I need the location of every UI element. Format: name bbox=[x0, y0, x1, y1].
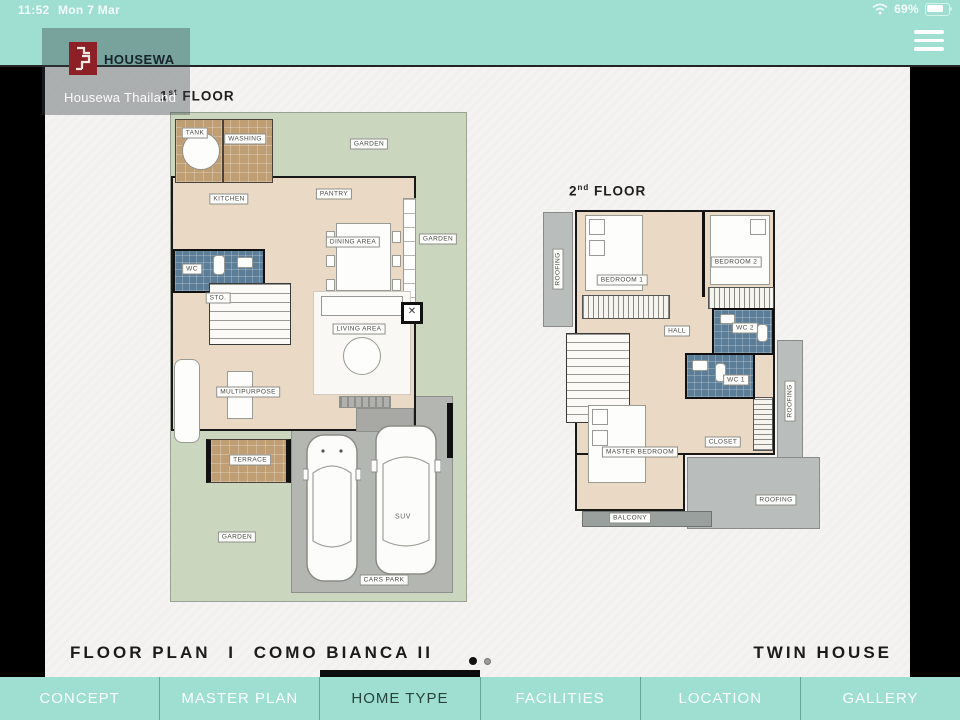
sink-icon bbox=[237, 257, 253, 268]
bottom-nav: CONCEPT MASTER PLAN HOME TYPE FACILITIES… bbox=[0, 677, 960, 720]
brand-name: HOUSEWA bbox=[104, 52, 175, 67]
nav-item-gallery[interactable]: GALLERY bbox=[800, 677, 960, 720]
caption-plan-name: COMO BIANCA II bbox=[254, 643, 433, 662]
master-bed-icon bbox=[588, 405, 646, 483]
room-label-kitchen: KITCHEN bbox=[209, 194, 248, 205]
caption-house-type: TWIN HOUSE bbox=[753, 643, 892, 663]
wifi-icon bbox=[872, 3, 888, 15]
second-floor-plan: ROOFING BEDROOM 1 BEDROOM 2 HALL WC 2 WC… bbox=[540, 205, 820, 560]
room-label-hall: HALL bbox=[664, 326, 690, 337]
dining-table-icon bbox=[336, 223, 391, 291]
toilet-icon bbox=[213, 255, 225, 275]
room-label-multipurpose: MULTIPURPOSE bbox=[216, 387, 280, 398]
nav-item-concept[interactable]: CONCEPT bbox=[0, 677, 159, 720]
room-label-dining: DINING AREA bbox=[326, 237, 380, 248]
room-label-garden-right: GARDEN bbox=[419, 234, 457, 245]
room-label-roofing-right: ROOFING bbox=[785, 380, 796, 421]
room-label-garden-bottom: GARDEN bbox=[218, 532, 256, 543]
room-label-wc: WC bbox=[182, 264, 202, 275]
wardrobe1-icon bbox=[582, 295, 670, 319]
label-suv: SUV bbox=[395, 514, 411, 521]
closet-shelves-icon bbox=[753, 397, 773, 451]
room-label-pantry: PANTRY bbox=[316, 189, 352, 200]
housewa-logo-icon bbox=[69, 42, 97, 75]
round-table-icon bbox=[343, 337, 381, 375]
room-label-closet: CLOSET bbox=[705, 437, 741, 448]
sedan-car-icon bbox=[303, 429, 361, 587]
room-label-balcony: BALCONY bbox=[609, 513, 651, 524]
entry-step bbox=[339, 396, 391, 408]
room-label-roofing-left: ROOFING bbox=[553, 248, 564, 289]
nav-item-location[interactable]: LOCATION bbox=[640, 677, 800, 720]
caption-divider: I bbox=[228, 643, 236, 662]
brand-subtitle: Housewa Thailand bbox=[64, 90, 176, 105]
wardrobe2-icon bbox=[708, 287, 774, 309]
room-label-terrace: TERRACE bbox=[229, 455, 271, 466]
bed2-icon bbox=[710, 215, 770, 285]
nav-item-home-type[interactable]: HOME TYPE bbox=[319, 677, 479, 720]
sofa-icon bbox=[321, 296, 403, 316]
status-date: Mon 7 Mar bbox=[58, 3, 120, 17]
nav-item-facilities[interactable]: FACILITIES bbox=[480, 677, 640, 720]
battery-icon bbox=[925, 3, 950, 16]
nav-item-master-plan[interactable]: MASTER PLAN bbox=[159, 677, 319, 720]
ac-unit-icon: ✕ bbox=[401, 302, 423, 324]
brand-overlay: HOUSEWA Housewa Thailand bbox=[42, 28, 190, 115]
multipurpose-sofa-icon bbox=[174, 359, 200, 443]
room-label-master-bedroom: MASTER BEDROOM bbox=[602, 447, 678, 458]
battery-percent: 69% bbox=[894, 2, 919, 16]
app-screen: 11:52 Mon 7 Mar 69% bbox=[0, 0, 960, 720]
room-label-bedroom2: BEDROOM 2 bbox=[711, 257, 762, 268]
page-dot-1[interactable] bbox=[469, 657, 477, 665]
status-right-cluster: 69% bbox=[872, 2, 950, 16]
room-label-sto: STO. bbox=[206, 293, 231, 304]
room-label-living: LIVING AREA bbox=[333, 324, 386, 335]
floorplan-slide: 1st FLOOR bbox=[45, 67, 910, 677]
page-dot-2[interactable] bbox=[484, 658, 491, 665]
status-time: 11:52 bbox=[18, 3, 50, 17]
room-label-garden-top: GARDEN bbox=[350, 139, 388, 150]
first-floor-plan: ✕ bbox=[170, 112, 467, 602]
status-bar: 11:52 Mon 7 Mar 69% bbox=[0, 0, 960, 20]
room-label-wc1: WC 1 bbox=[723, 375, 749, 386]
caption-section: FLOOR PLAN bbox=[70, 643, 211, 662]
hamburger-menu-icon[interactable] bbox=[914, 30, 944, 54]
room-label-tank: TANK bbox=[182, 128, 208, 139]
room-label-washing: WASHING bbox=[224, 134, 266, 145]
slide-caption-left: FLOOR PLAN I COMO BIANCA II bbox=[70, 643, 433, 663]
room-label-bedroom1: BEDROOM 1 bbox=[597, 275, 648, 286]
suv-car-icon bbox=[371, 422, 441, 578]
active-tab-indicator bbox=[320, 670, 480, 677]
room-label-wc2: WC 2 bbox=[732, 323, 758, 334]
room-label-roofing-bottom: ROOFING bbox=[755, 495, 796, 506]
second-floor-title: 2nd FLOOR bbox=[569, 183, 646, 199]
room-label-cars-park: CARS PARK bbox=[360, 575, 409, 586]
